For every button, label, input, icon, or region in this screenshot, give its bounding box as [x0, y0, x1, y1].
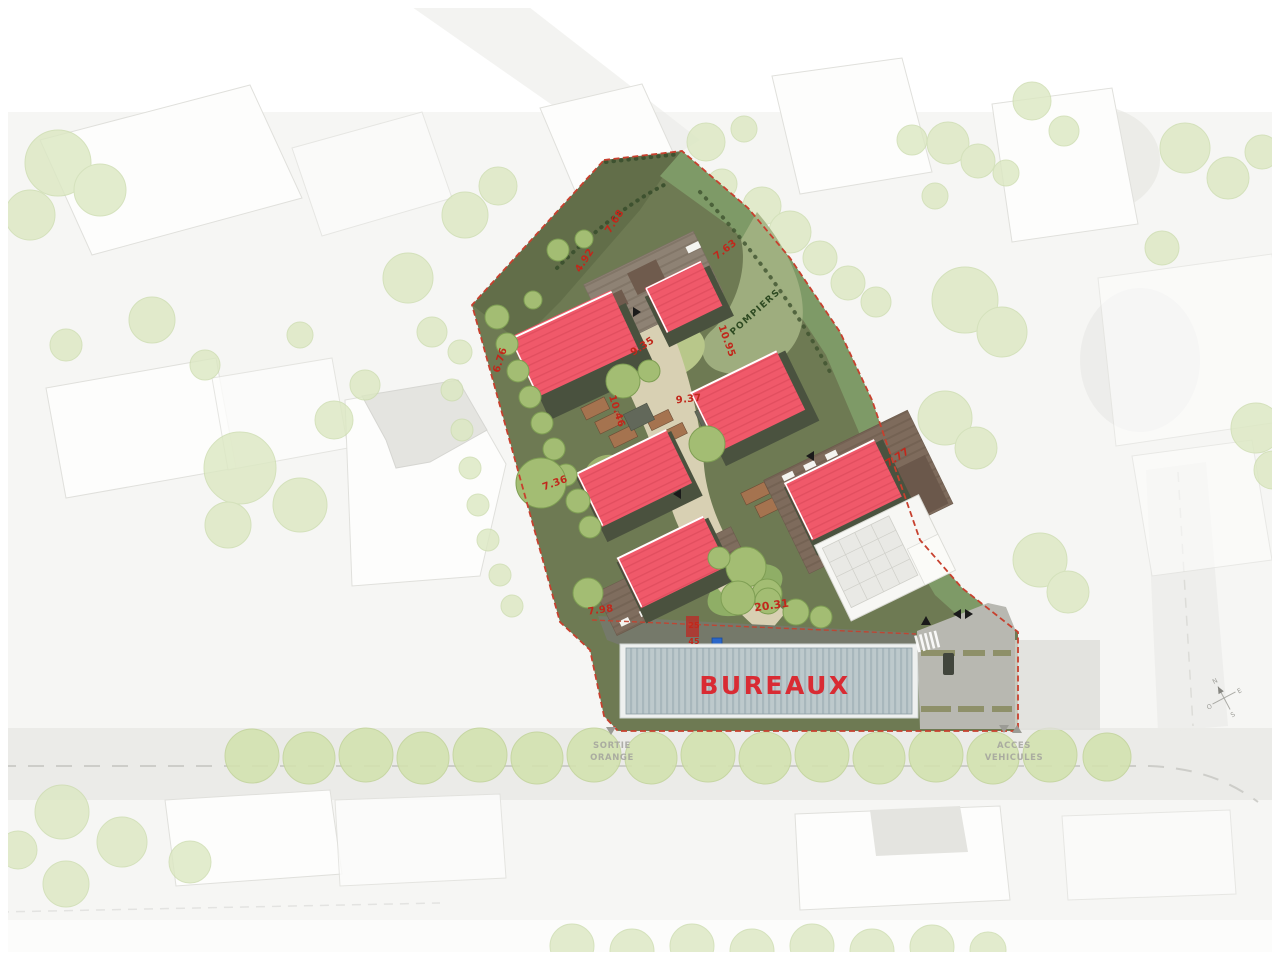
- site-plan-image: BUREAUX: [0, 0, 1280, 960]
- acces-label-line2: VEHICULES: [985, 753, 1044, 763]
- bureaux-label: BUREAUX: [699, 671, 850, 700]
- dimension-25: 25: [688, 621, 700, 630]
- sortie-label-line2: ORANGE: [590, 753, 634, 763]
- site-plan-canvas: BUREAUX: [0, 0, 1280, 960]
- bureaux-building: BUREAUX: [620, 644, 918, 718]
- acces-label-line1: ACCES: [997, 741, 1031, 751]
- car-symbol: [943, 653, 954, 675]
- dimension-45: 45: [688, 637, 700, 646]
- sortie-label-line1: SORTIE: [593, 741, 631, 751]
